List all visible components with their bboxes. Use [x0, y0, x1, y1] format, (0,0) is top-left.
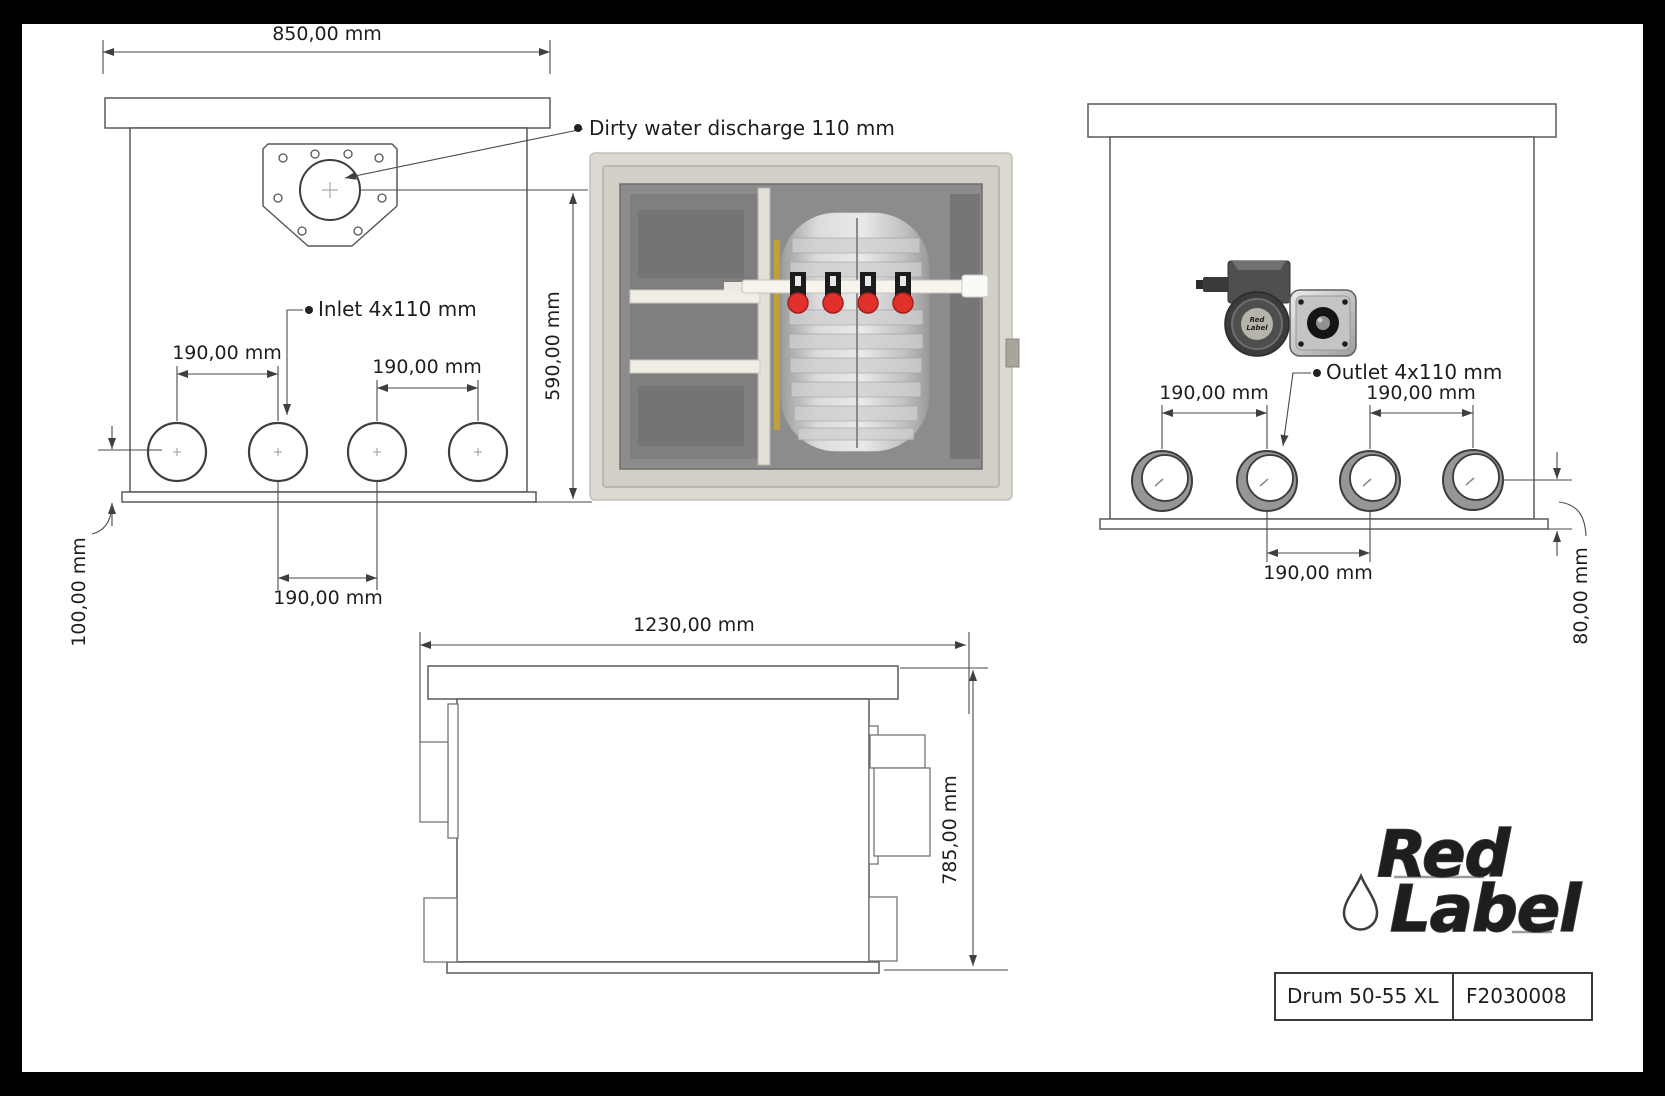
technical-drawing: Dirty water discharge 110 mm 850,00 mm 5… [0, 0, 1665, 1096]
bdim-190B-text: 190,00 mm [1263, 562, 1373, 584]
dim-850-text: 850,00 mm [272, 23, 382, 45]
photo-left-upper-shadow [638, 210, 744, 278]
nozzle-4 [893, 272, 913, 313]
dim-100-text: 100,00 mm [68, 537, 90, 647]
dim-190R-text: 190,00 mm [372, 356, 482, 378]
spraybar-stub [724, 282, 742, 291]
nozzle-3 [858, 272, 878, 313]
side-base [447, 962, 879, 973]
photo-right-gap [950, 194, 980, 459]
side-motor-body [874, 768, 930, 856]
nozzle-2 [823, 272, 843, 313]
photo-divider [758, 188, 770, 465]
spraybar-elbow [962, 275, 988, 297]
bdim-190R-text: 190,00 mm [1366, 382, 1476, 404]
side-body [457, 699, 869, 962]
photo-shelf-2 [630, 360, 760, 373]
dim-190B-text: 190,00 mm [273, 587, 383, 609]
inlet-label: Inlet 4x110 mm [318, 297, 477, 321]
photo-shelf-1 [630, 290, 760, 303]
bearing-hub-highlight [1318, 318, 1323, 323]
side-discharge-flange [448, 704, 458, 838]
title-block-code: F2030008 [1466, 984, 1567, 1008]
dim-80-text: 80,00 mm [1570, 547, 1592, 644]
outlet-3 [1340, 451, 1400, 511]
drawing-sheet: Dirty water discharge 110 mm 850,00 mm 5… [0, 0, 1665, 1096]
drum-brass-ring [774, 240, 780, 430]
back-base [1100, 519, 1548, 529]
logo-word2: Label [1390, 873, 1582, 947]
discharge-label: Dirty water discharge 110 mm [589, 116, 895, 140]
motor-badge-word2: Label [1246, 324, 1268, 332]
side-lid [428, 666, 898, 699]
front-base [122, 492, 536, 502]
photo-left-lower-shadow [638, 386, 744, 446]
outlet-bullet [1313, 369, 1321, 377]
side-left-stub [424, 898, 457, 962]
top-view-photo [590, 153, 1019, 500]
motor-gearbox-top [1232, 261, 1286, 270]
nozzle-1 [788, 272, 808, 313]
dim-190L-text: 190,00 mm [172, 342, 282, 364]
photo-latch [1006, 339, 1019, 367]
motor-shaft [1203, 277, 1229, 292]
side-outlet-stub [869, 897, 897, 961]
title-block-model: Drum 50-55 XL [1287, 984, 1439, 1008]
motor-badge-word1: Red [1250, 316, 1266, 324]
outlet-4 [1443, 450, 1503, 510]
front-lid [105, 98, 550, 128]
dim-590-text: 590,00 mm [542, 291, 564, 401]
dim-1230-text: 1230,00 mm [633, 614, 755, 636]
back-lid [1088, 104, 1556, 137]
bearing-hub-center [1316, 316, 1330, 330]
side-motor-gearbox [870, 735, 925, 768]
outlet-1 [1132, 451, 1192, 511]
inlet-bullet [305, 306, 313, 314]
title-block: Drum 50-55 XL F2030008 [1275, 973, 1592, 1020]
discharge-bullet [574, 124, 582, 132]
outlet-2 [1237, 451, 1297, 511]
dim-785-text: 785,00 mm [939, 775, 961, 885]
bdim-190L-text: 190,00 mm [1159, 382, 1269, 404]
spraybar [742, 280, 968, 293]
side-discharge-pipe [420, 742, 448, 822]
outlet-label: Outlet 4x110 mm [1326, 360, 1502, 384]
